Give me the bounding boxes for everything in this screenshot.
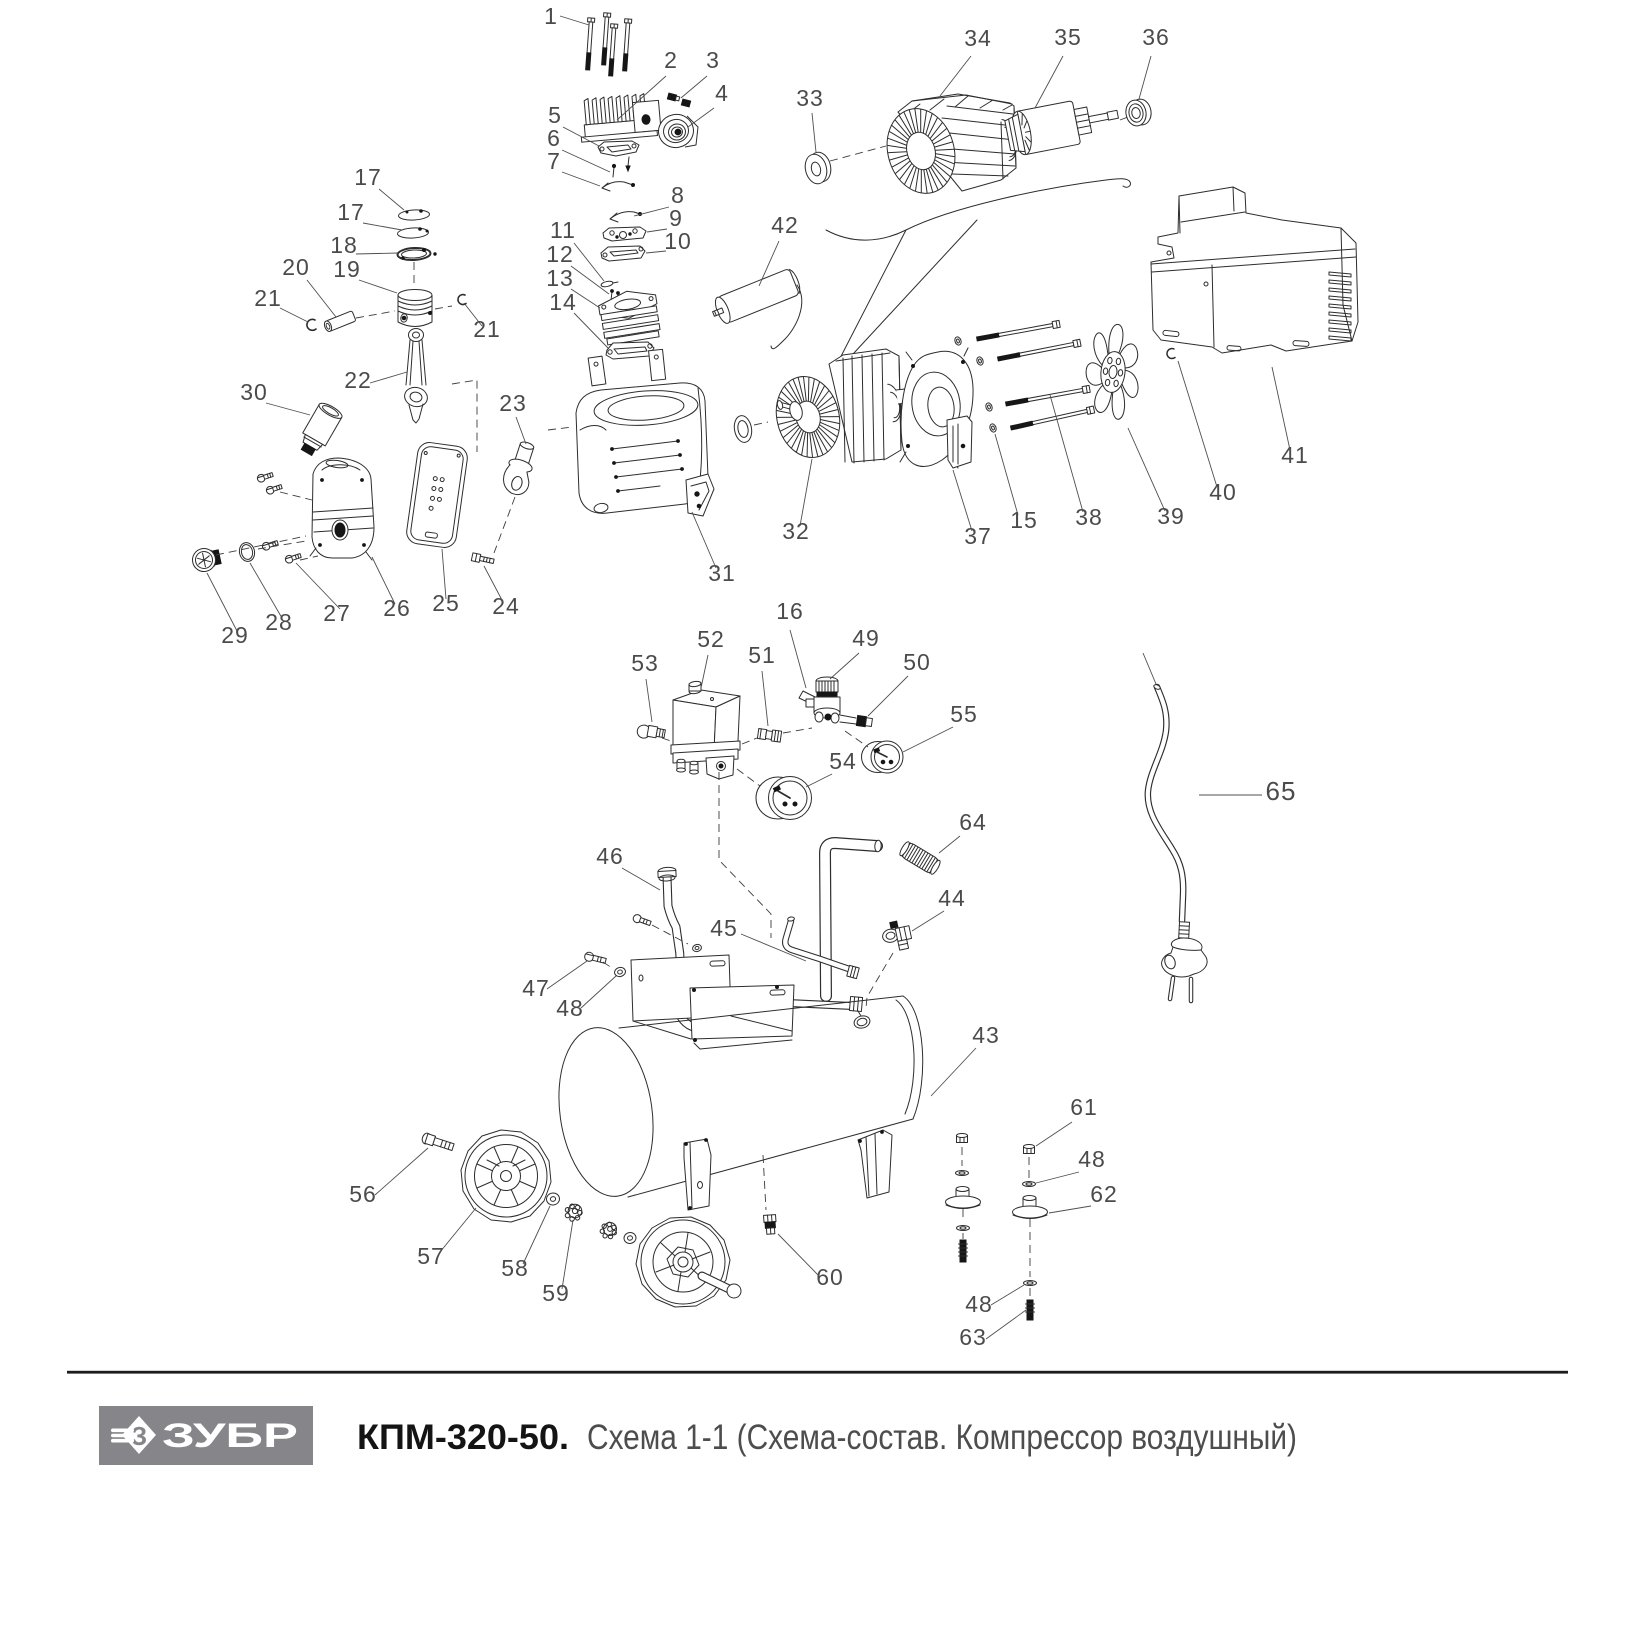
svg-text:32: 32 (782, 518, 810, 544)
svg-text:26: 26 (383, 595, 411, 621)
svg-text:60: 60 (816, 1264, 844, 1290)
svg-text:38: 38 (1075, 504, 1103, 530)
svg-text:57: 57 (417, 1243, 445, 1269)
svg-text:29: 29 (221, 622, 249, 648)
svg-text:11: 11 (550, 217, 576, 243)
svg-text:49: 49 (852, 625, 880, 651)
svg-text:16: 16 (776, 598, 804, 624)
svg-text:27: 27 (323, 600, 351, 626)
svg-text:55: 55 (950, 701, 978, 727)
svg-text:13: 13 (546, 265, 574, 291)
svg-text:КПМ-320-50.Схема 1-1 (Схема-со: КПМ-320-50.Схема 1-1 (Схема-состав. Комп… (357, 1418, 1297, 1457)
svg-text:23: 23 (499, 390, 527, 416)
svg-text:30: 30 (240, 379, 268, 405)
svg-text:43: 43 (972, 1022, 1000, 1048)
svg-text:39: 39 (1157, 503, 1185, 529)
svg-text:37: 37 (964, 523, 992, 549)
svg-text:41: 41 (1281, 442, 1309, 468)
svg-text:63: 63 (959, 1324, 987, 1350)
svg-text:19: 19 (333, 256, 361, 282)
svg-text:48: 48 (1078, 1146, 1106, 1172)
svg-text:44: 44 (938, 885, 966, 911)
svg-text:ЗУБР: ЗУБР (162, 1417, 298, 1455)
svg-text:48: 48 (556, 995, 584, 1021)
svg-text:12: 12 (546, 241, 574, 267)
svg-text:33: 33 (796, 85, 824, 111)
svg-text:24: 24 (492, 593, 520, 619)
svg-text:50: 50 (903, 649, 931, 675)
svg-text:51: 51 (748, 642, 776, 668)
svg-text:21: 21 (254, 285, 282, 311)
svg-text:36: 36 (1142, 24, 1170, 50)
svg-text:4: 4 (715, 80, 729, 106)
svg-text:46: 46 (596, 843, 624, 869)
svg-text:40: 40 (1209, 479, 1237, 505)
svg-text:10: 10 (664, 228, 692, 254)
svg-text:53: 53 (631, 650, 659, 676)
svg-text:64: 64 (959, 809, 987, 835)
svg-text:42: 42 (771, 212, 799, 238)
svg-text:22: 22 (344, 367, 372, 393)
svg-text:65: 65 (1266, 776, 1297, 806)
svg-text:58: 58 (501, 1255, 529, 1281)
svg-text:3: 3 (706, 47, 720, 73)
svg-text:45: 45 (710, 915, 738, 941)
svg-text:20: 20 (282, 254, 310, 280)
svg-text:31: 31 (708, 560, 736, 586)
svg-text:1: 1 (544, 3, 558, 29)
svg-text:17: 17 (354, 164, 382, 190)
svg-text:35: 35 (1054, 24, 1082, 50)
svg-text:7: 7 (547, 148, 561, 174)
svg-text:14: 14 (549, 289, 577, 315)
svg-text:34: 34 (964, 25, 992, 51)
svg-text:54: 54 (829, 748, 857, 774)
svg-text:61: 61 (1070, 1094, 1098, 1120)
svg-text:52: 52 (697, 626, 725, 652)
svg-text:15: 15 (1010, 507, 1038, 533)
svg-text:17: 17 (337, 199, 365, 225)
svg-text:62: 62 (1090, 1181, 1118, 1207)
svg-text:2: 2 (664, 47, 678, 73)
svg-text:59: 59 (542, 1280, 570, 1306)
svg-text:48: 48 (965, 1291, 993, 1317)
svg-text:18: 18 (330, 232, 358, 258)
svg-text:56: 56 (349, 1181, 377, 1207)
svg-text:47: 47 (522, 975, 550, 1001)
